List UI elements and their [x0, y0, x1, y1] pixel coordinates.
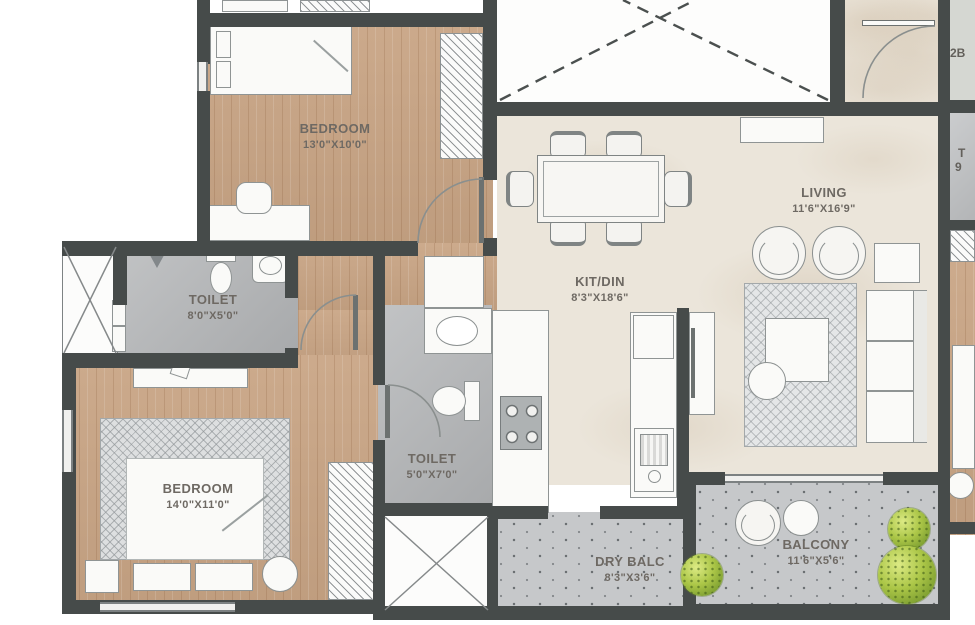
kitchen-sink-basin [640, 434, 668, 466]
wall [940, 100, 975, 113]
room-label-kit-din: KIT/DIN 8'3"X18'6" [530, 274, 670, 305]
door-leaf-toilet-2 [385, 385, 390, 438]
dining-chair [506, 171, 534, 207]
adjacent-table [947, 472, 974, 499]
adjacent-wardrobe [950, 230, 975, 262]
wall [600, 506, 690, 519]
room-label-toilet-1: TOILET 8'0"X5'0" [143, 292, 283, 323]
bedroom-1-window [197, 62, 208, 93]
shaft-1 [62, 245, 118, 355]
pouf-2 [262, 556, 298, 592]
room-dims: 11'6"X5'6" [750, 554, 882, 568]
wc-1-bowl [210, 262, 232, 294]
bedroom-2-window-2 [100, 602, 235, 612]
wall [197, 13, 493, 27]
balcony-table [783, 500, 819, 536]
wall [62, 353, 298, 368]
wall [113, 243, 127, 305]
room-name: BEDROOM [128, 481, 268, 498]
shaft-1-door-2 [112, 326, 126, 352]
wall [373, 606, 683, 620]
door-leaf-entry [862, 20, 935, 26]
wall [483, 0, 497, 180]
fridge [633, 315, 674, 359]
desk-1-chair [236, 182, 272, 214]
cutoff-furniture-2 [300, 0, 370, 12]
adjacent-room-label-line-1: T [958, 146, 965, 160]
stove [500, 396, 542, 450]
room-dims: 14'0"X11'0" [128, 498, 268, 512]
wall [948, 522, 975, 534]
dining-chair [664, 171, 692, 207]
sofa-cushion-line [867, 340, 913, 342]
wall [483, 238, 497, 256]
wall [197, 0, 210, 64]
door-leaf-bedroom-1 [479, 177, 484, 243]
basin-1-bowl [259, 256, 282, 275]
wall [683, 472, 696, 617]
door-leaf-toilet-1 [353, 295, 358, 350]
room-label-living: LIVING 11'6"X16'9" [754, 185, 894, 216]
basin-2-bowl [436, 316, 478, 346]
side-pouf [748, 362, 786, 400]
dresser-2 [133, 368, 248, 388]
wc-2-bowl [432, 386, 466, 416]
room-dims: 8'0"X5'0" [143, 309, 283, 323]
cutoff-furniture [222, 0, 288, 12]
room-label-dry-balc: DRY BALC 8'3"X3'6" [565, 554, 695, 585]
wall [62, 353, 76, 613]
floor-plan: BEDROOM 13'0"X10'0" TOILET 8'0"X5'0" BED… [0, 0, 975, 625]
room-label-toilet-2: TOILET 5'0"X7'0" [362, 451, 502, 482]
sofa-side-table [874, 243, 920, 283]
adjacent-unit-label: 2B [950, 46, 965, 60]
plant [888, 508, 930, 550]
sofa-cushion-line [867, 390, 913, 392]
room-name: DRY BALC [565, 554, 695, 571]
room-name: TOILET [362, 451, 502, 468]
plant [878, 546, 936, 604]
utility-unit [424, 256, 484, 308]
wall [683, 604, 938, 620]
foyer-floor [845, 0, 940, 105]
room-dims: 8'3"X18'6" [530, 291, 670, 305]
console-table [740, 117, 824, 143]
wall [830, 0, 845, 116]
room-label-bedroom-1: BEDROOM 13'0"X10'0" [265, 121, 405, 152]
room-dims: 8'3"X3'6" [565, 571, 695, 585]
wall [197, 91, 210, 255]
room-label-bedroom-2: BEDROOM 14'0"X11'0" [128, 481, 268, 512]
wall [285, 243, 298, 298]
wall [373, 243, 385, 385]
room-label-balcony: BALCONY 11'6"X5'6" [750, 537, 882, 568]
room-dims: 13'0"X10'0" [265, 138, 405, 152]
wardrobe-2 [328, 462, 374, 600]
wardrobe-1 [440, 33, 483, 159]
lounge-chair [752, 226, 806, 280]
adjacent-room-label-line-2: 9 [955, 160, 962, 174]
dining-table [537, 155, 665, 223]
wall [945, 220, 975, 230]
kitchen-faucet [648, 470, 661, 483]
room-dims: 5'0"X7'0" [362, 468, 502, 482]
wall [373, 503, 492, 516]
room-name: TOILET [143, 292, 283, 309]
bed-1-pillow [216, 31, 231, 58]
room-name: KIT/DIN [530, 274, 670, 291]
bed-2-bench [133, 563, 191, 591]
room-name: LIVING [754, 185, 894, 202]
lounge-chair [812, 226, 866, 280]
bed-1-pillow-2 [216, 61, 231, 88]
room-dims: 11'6"X16'9" [754, 202, 894, 216]
tv-panel [691, 328, 695, 398]
void-area [497, 0, 832, 102]
sofa-backrest [913, 291, 927, 442]
room-name: BEDROOM [265, 121, 405, 138]
balcony-slider [725, 474, 883, 483]
bed-1 [210, 25, 352, 95]
wc-2-tank [464, 381, 480, 421]
shaft-2 [383, 515, 490, 612]
room-name: BALCONY [750, 537, 882, 554]
wall [487, 506, 498, 618]
wall [883, 472, 938, 485]
wall [497, 102, 940, 116]
bedroom-2-window [62, 410, 73, 472]
corner-table-2 [85, 560, 119, 593]
bed-2-bench-2 [195, 563, 253, 591]
adjacent-bed [952, 345, 975, 469]
